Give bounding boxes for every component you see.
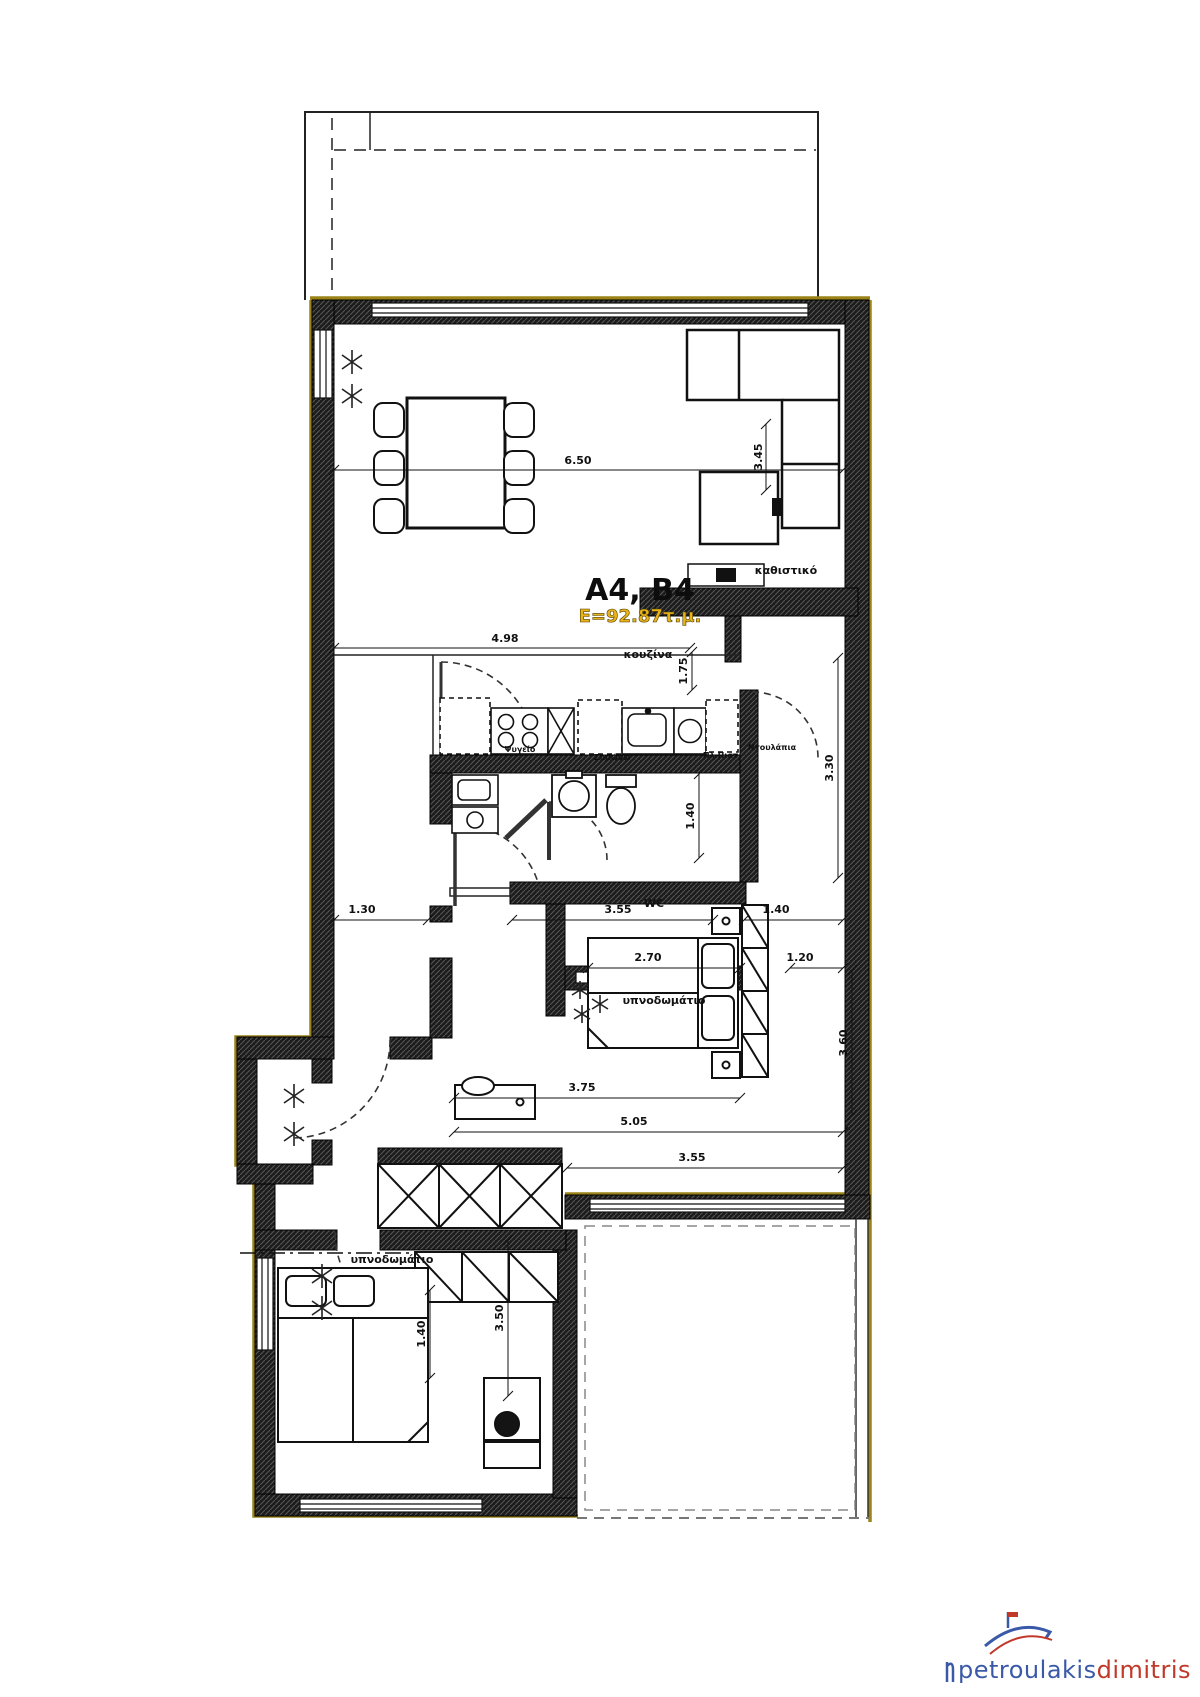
- toilet-tank: [606, 775, 636, 787]
- dim-wc-depth: 1.40: [684, 802, 697, 829]
- logo-roof-red: [990, 1636, 1052, 1654]
- logo-text: petroulakisdimitris: [958, 1656, 1191, 1684]
- interior-lines: [334, 655, 740, 896]
- dim-living-width: 6.50: [564, 454, 591, 467]
- top-terrace-outline: [305, 112, 818, 300]
- label-wc: WC: [644, 897, 664, 910]
- floor-plan-svg: 6.50 3.45 4.98 1.75 3.30 1.40 1.30 3.55 …: [0, 0, 1200, 1697]
- dim-bed2-bed: 1.40: [415, 1320, 428, 1347]
- label-fridge: Ψυγείο: [505, 744, 536, 754]
- dim-kitchen-depth: 1.75: [677, 657, 690, 684]
- bedroom-lower-closet: [415, 1252, 558, 1302]
- dim-bed1-width: 2.70: [634, 951, 661, 964]
- floor-plan-page: 6.50 3.45 4.98 1.75 3.30 1.40 1.30 3.55 …: [0, 0, 1200, 1697]
- fridge-box: [440, 698, 490, 754]
- logo-mark: [947, 1662, 953, 1682]
- dim-bed2-depth: 3.50: [493, 1304, 506, 1331]
- dining-table: [374, 398, 534, 533]
- label-dishwasher: Πλ.Πιατ.: [703, 751, 741, 760]
- dim-row-right: 1.40: [762, 903, 789, 916]
- dim-row-mid: 3.55: [604, 903, 631, 916]
- label-living: καθιστικό: [755, 564, 818, 577]
- toilet-bowl: [607, 788, 635, 824]
- dim-hall-depth: 3.30: [823, 754, 836, 781]
- logo: petroulakisdimitris: [947, 1612, 1191, 1684]
- dishwasher-box: [706, 700, 738, 752]
- label-kitchen: κουζίνα: [624, 648, 673, 661]
- logo-flag: [1008, 1612, 1018, 1617]
- dim-kitchen-width: 4.98: [491, 632, 518, 645]
- dim-terrace-width: 3.55: [678, 1151, 705, 1164]
- stool: [495, 1412, 519, 1436]
- label-bedroom-lower: υπνοδωμάτιο: [351, 1253, 434, 1266]
- label-bedroom-right: υπνοδωμάτιο: [623, 994, 706, 1007]
- dim-row-left: 1.30: [348, 903, 375, 916]
- lower-terrace: [577, 1219, 869, 1519]
- dim-bed1-side: 1.20: [786, 951, 813, 964]
- wc-fixtures: [552, 771, 636, 824]
- dim-bed1-depth: 3.60: [837, 1029, 850, 1056]
- unit-area: E=92.87τ.μ.: [579, 606, 702, 627]
- coffee-table: [700, 472, 781, 544]
- logo-text-red: dimitris: [1097, 1656, 1191, 1684]
- bedroom-right-furniture: [455, 905, 768, 1119]
- hall-closet: [378, 1164, 562, 1228]
- unit-title: A4, B4: [585, 573, 695, 608]
- dim-lower-total: 5.05: [620, 1115, 647, 1128]
- logo-text-blue: petroulakis: [958, 1656, 1097, 1684]
- dim-bed1-total: 3.75: [568, 1081, 595, 1094]
- dim-living-depth: 3.45: [752, 443, 765, 470]
- label-prep: Ζυμώνω: [594, 752, 630, 762]
- label-cupboards: Ντουλάπια: [748, 743, 797, 752]
